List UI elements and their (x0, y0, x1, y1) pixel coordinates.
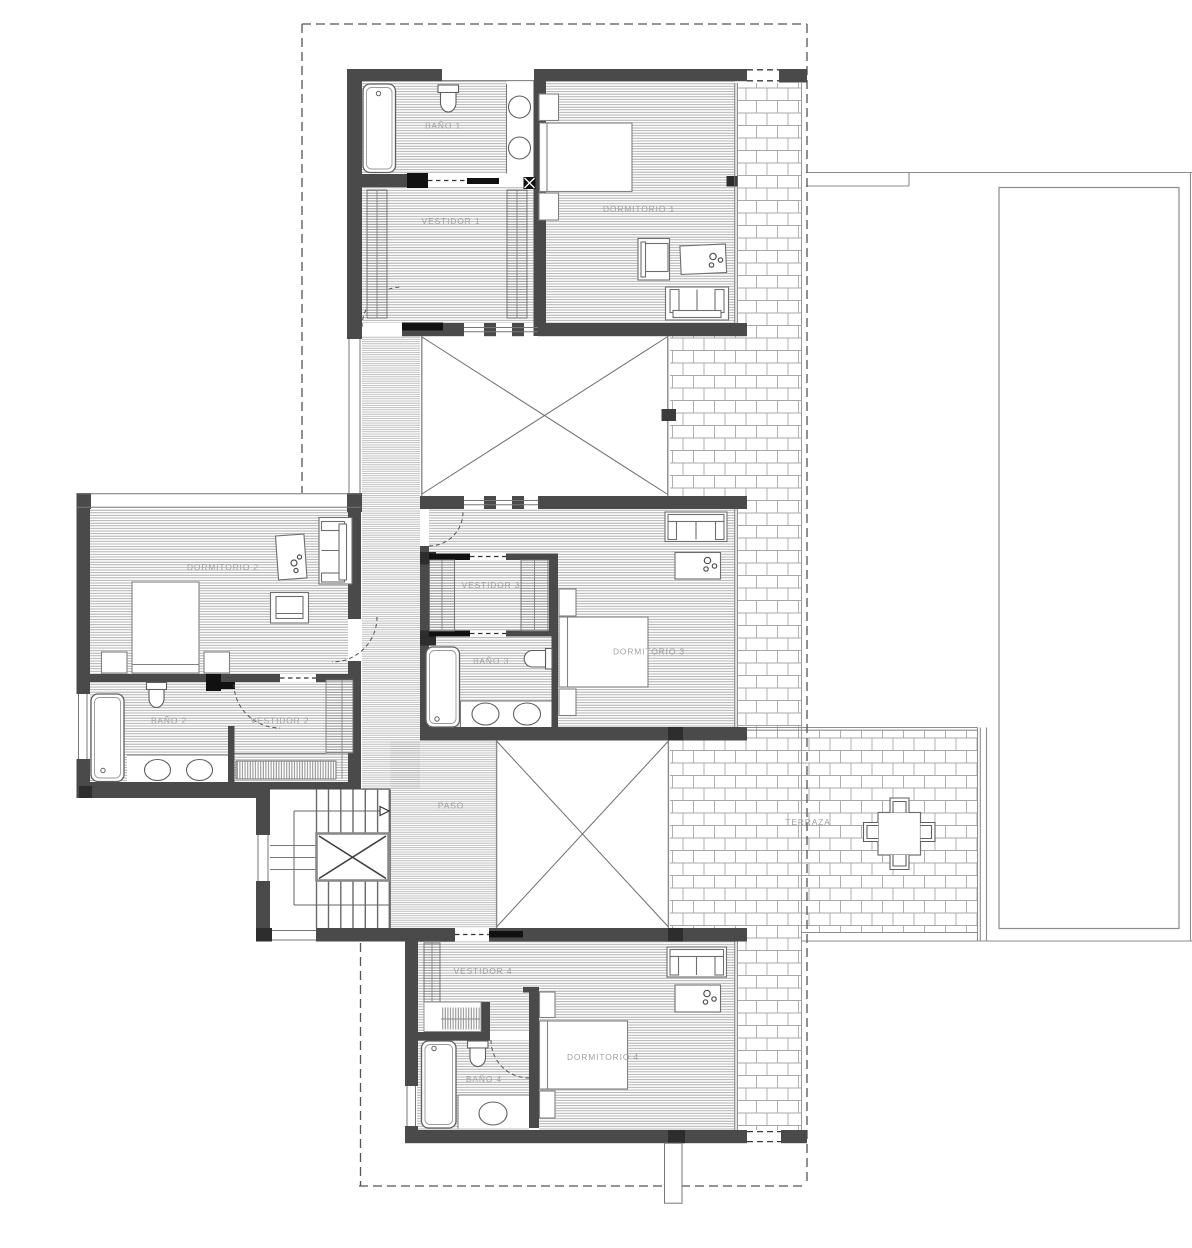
svg-text:VESTIDOR 3: VESTIDOR 3 (462, 580, 521, 590)
svg-text:BAÑO 2: BAÑO 2 (151, 716, 187, 726)
svg-text:DORMITORIO 3: DORMITORIO 3 (613, 647, 685, 657)
svg-text:VESTIDOR 1: VESTIDOR 1 (422, 216, 481, 226)
svg-text:VESTIDOR 4: VESTIDOR 4 (454, 966, 513, 976)
svg-text:BAÑO 4: BAÑO 4 (466, 1074, 502, 1084)
svg-text:BAÑO 1: BAÑO 1 (425, 121, 461, 131)
svg-text:PASO: PASO (438, 801, 464, 811)
svg-text:DORMITORIO 4: DORMITORIO 4 (567, 1052, 639, 1062)
svg-text:TERRAZA: TERRAZA (785, 817, 830, 827)
svg-text:VESTIDOR 2: VESTIDOR 2 (251, 716, 310, 726)
svg-text:DORMITORIO 2: DORMITORIO 2 (187, 562, 259, 572)
svg-text:DORMITORIO 1: DORMITORIO 1 (603, 204, 675, 214)
svg-text:BAÑO 3: BAÑO 3 (473, 656, 509, 666)
